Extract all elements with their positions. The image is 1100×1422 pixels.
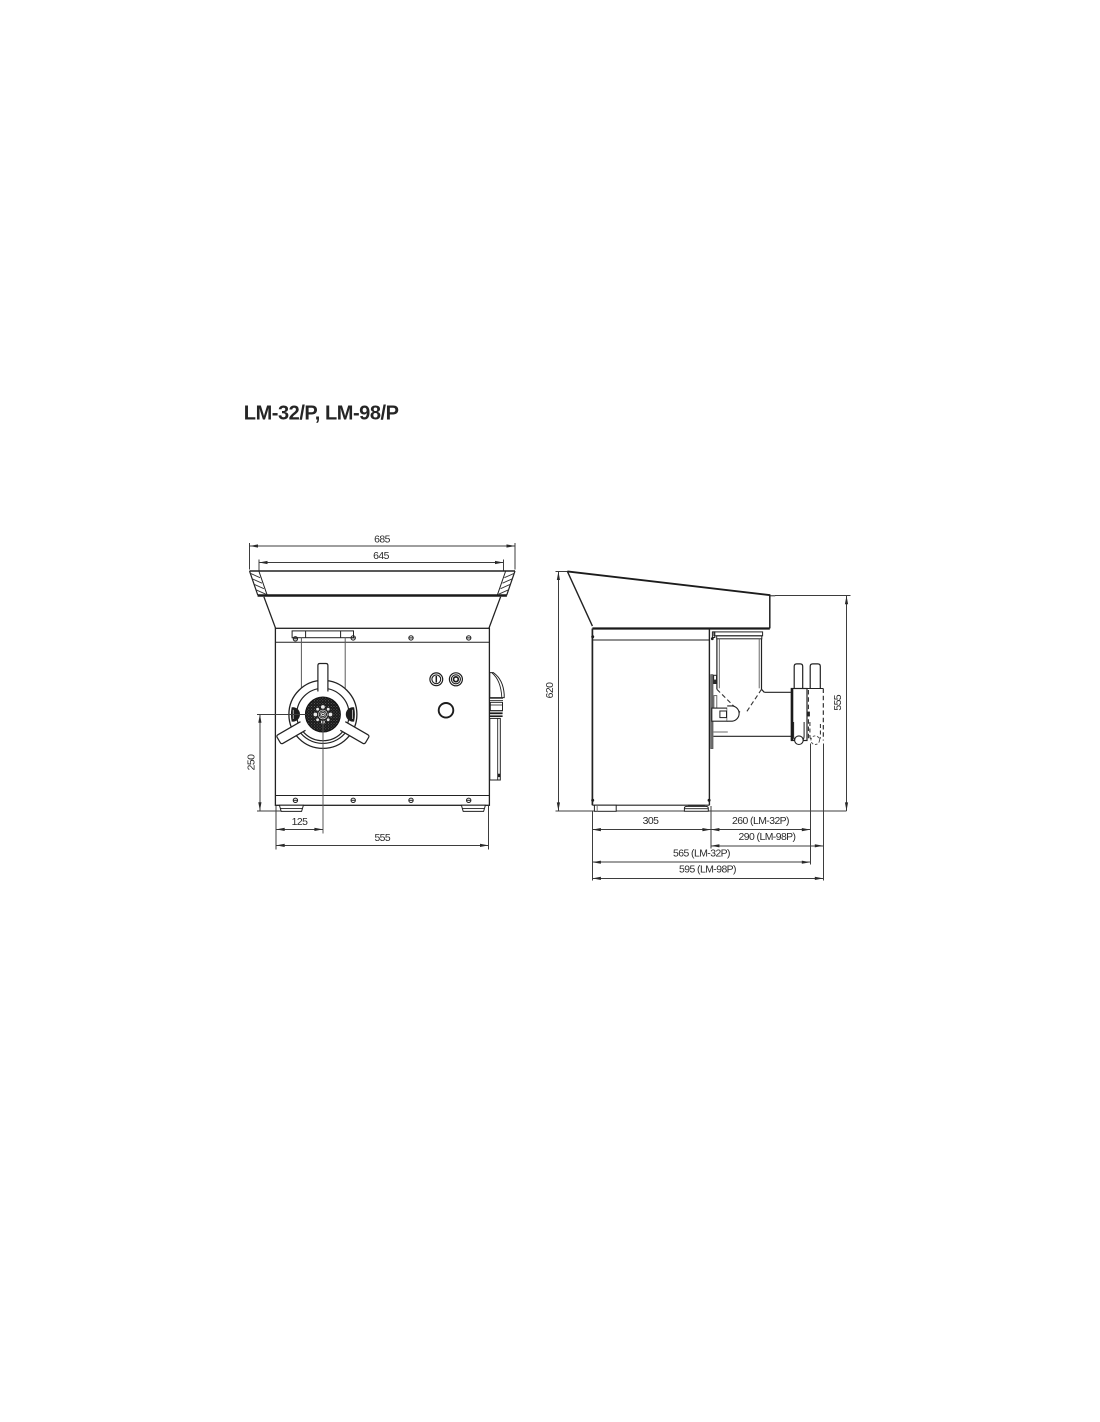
svg-text:305: 305	[643, 816, 659, 827]
svg-text:565 (LM-32P): 565 (LM-32P)	[673, 849, 730, 860]
svg-text:555: 555	[833, 694, 844, 710]
svg-text:685: 685	[374, 534, 390, 545]
svg-text:260 (LM-32P): 260 (LM-32P)	[732, 816, 789, 827]
svg-text:645: 645	[373, 551, 389, 562]
svg-text:LM-32/P, LM-98/P: LM-32/P, LM-98/P	[244, 402, 399, 424]
svg-text:290 (LM-98P): 290 (LM-98P)	[739, 832, 796, 843]
svg-text:125: 125	[292, 817, 308, 828]
svg-text:620: 620	[545, 682, 556, 698]
svg-text:555: 555	[374, 833, 390, 844]
svg-text:595 (LM-98P): 595 (LM-98P)	[679, 865, 736, 876]
svg-text:250: 250	[246, 754, 257, 770]
